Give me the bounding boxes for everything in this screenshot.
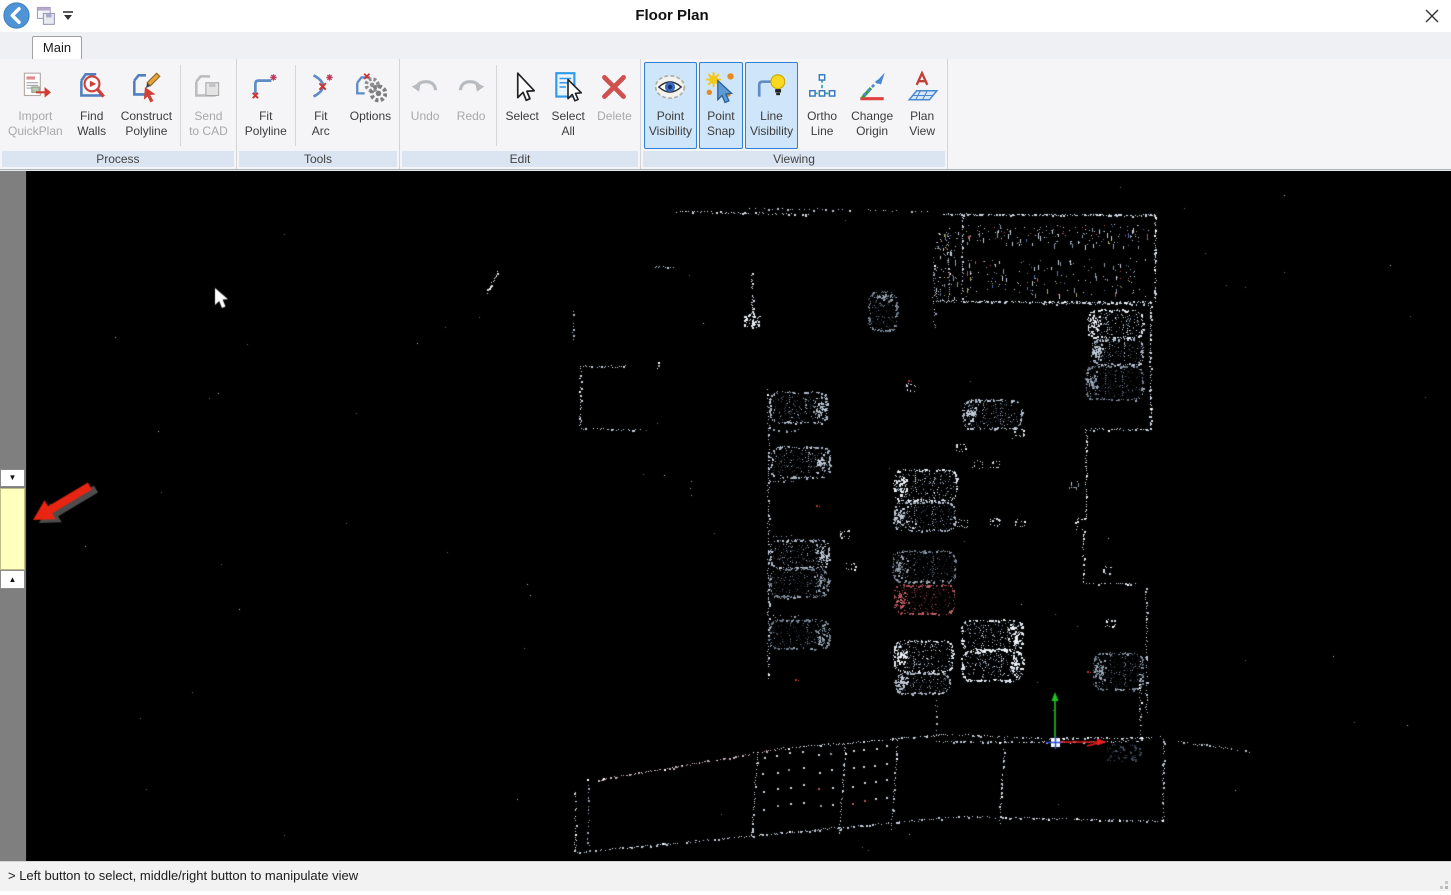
button-label: Point [707,109,734,124]
button-select-all[interactable]: SelectAll [546,62,590,149]
button-label: Delete [597,109,632,124]
undo-icon [408,65,442,109]
button-undo[interactable]: Undo [403,62,447,149]
button-select[interactable]: Select [500,62,544,149]
button-line-visibility[interactable]: LineVisibility [745,62,798,149]
button-construct-polyline[interactable]: ConstructPolyline [116,62,177,149]
group-label: Tools [239,151,397,167]
button-label: Fit [314,109,327,124]
import-quickplan-icon [18,65,52,109]
button-label: Undo [411,109,440,124]
group-divider [180,65,181,146]
delete-icon [597,65,631,109]
close-button[interactable] [1423,7,1441,25]
button-label: Import [18,109,52,124]
ribbon: ImportQuickPlanFindWallsConstructPolylin… [0,59,1451,170]
button-label: Select [551,109,584,124]
ortho-line-icon [805,65,839,109]
button-point-visibility[interactable]: PointVisibility [644,62,697,149]
button-label: Polyline [245,124,287,139]
button-label: Snap [707,124,735,139]
button-label: Plan [910,109,934,124]
ribbon-group-viewing: PointVisibilityPointSnapLineVisibilityOr… [641,59,948,169]
main-area: ▼ ▲ [0,171,1451,861]
button-ortho-line[interactable]: OrthoLine [800,62,844,149]
button-label: Ortho [807,109,837,124]
button-label: Send [194,109,222,124]
button-label: Arc [312,124,330,139]
line-visibility-icon [755,65,789,109]
button-label: Select [505,109,538,124]
button-point-snap[interactable]: PointSnap [699,62,743,149]
sidebar-highlight-panel[interactable] [0,488,25,570]
status-bar: > Left button to select, middle/right bu… [0,861,1451,891]
status-message: > Left button to select, middle/right bu… [8,868,358,883]
button-delete[interactable]: Delete [592,62,637,149]
button-label: Change [851,109,893,124]
button-label: Construct [121,109,172,124]
button-label: Redo [457,109,486,124]
point-snap-icon [704,65,738,109]
button-label: Visibility [649,124,692,139]
fit-polyline-icon [249,65,283,109]
group-divider [496,65,497,146]
title-bar: Floor Plan [0,0,1451,33]
construct-polyline-icon [129,65,163,109]
button-fit-arc[interactable]: FitArc [299,62,343,149]
ribbon-tab-row: Main [0,32,1451,59]
button-label: Origin [856,124,888,139]
button-import-quickplan[interactable]: ImportQuickPlan [3,62,68,149]
sidebar-scroll-down-button[interactable]: ▼ [0,469,25,487]
select-icon [505,65,539,109]
button-label: Point [657,109,684,124]
window-title: Floor Plan [0,7,1344,24]
fit-arc-icon [304,65,338,109]
left-sidebar: ▼ ▲ [0,171,27,861]
sidebar-scroll-up-button[interactable]: ▲ [0,570,25,589]
button-plan-view[interactable]: PlanView [900,62,944,149]
button-label: to CAD [189,124,228,139]
button-find-walls[interactable]: FindWalls [70,62,114,149]
redo-icon [454,65,488,109]
ribbon-group-edit: UndoRedoSelectSelectAllDeleteEdit [400,59,641,169]
button-label: Fit [259,109,272,124]
button-send-to-cad[interactable]: Sendto CAD [184,62,233,149]
viewport-canvas[interactable] [28,171,1451,861]
button-label: Line [811,124,834,139]
ribbon-group-process: ImportQuickPlanFindWallsConstructPolylin… [0,59,237,169]
button-label: QuickPlan [8,124,63,139]
button-redo[interactable]: Redo [449,62,493,149]
button-fit-polyline[interactable]: FitPolyline [240,62,292,149]
send-to-cad-icon [191,65,225,109]
select-all-icon [551,65,585,109]
group-label: Process [2,151,234,167]
button-label: All [561,124,574,139]
button-options[interactable]: Options [345,62,396,149]
change-origin-icon [855,65,889,109]
button-label: Walls [77,124,106,139]
group-label: Viewing [643,151,945,167]
button-label: Line [760,109,783,124]
options-icon [353,65,387,109]
resize-grip-icon[interactable] [1437,877,1449,889]
tab-main[interactable]: Main [32,36,82,59]
button-label: View [909,124,935,139]
ribbon-group-tools: FitPolylineFitArcOptionsTools [237,59,400,169]
group-label: Edit [402,151,638,167]
find-walls-icon [75,65,109,109]
button-label: Options [350,109,391,124]
plan-view-icon [905,65,939,109]
button-label: Find [80,109,103,124]
point-visibility-icon [653,65,687,109]
button-change-origin[interactable]: ChangeOrigin [846,62,898,149]
group-divider [295,65,296,146]
button-label: Polyline [125,124,167,139]
button-label: Visibility [750,124,793,139]
